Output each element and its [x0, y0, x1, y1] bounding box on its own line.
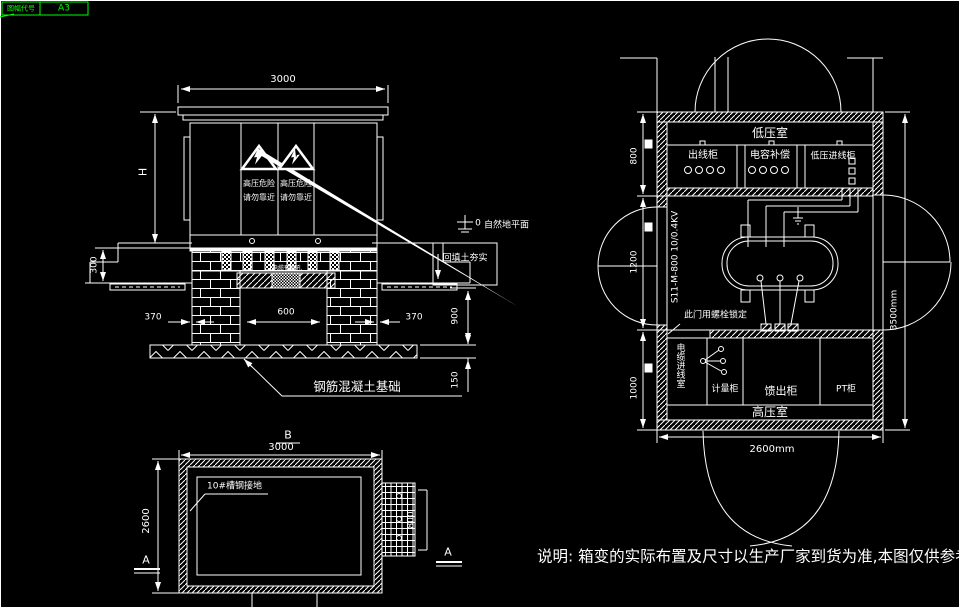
warning-text-line1: 高压危险	[243, 180, 275, 188]
cabinet-lv-incoming-label: 低压进线柜	[810, 153, 855, 162]
plan-dim-3000: 3000	[268, 443, 293, 453]
terminal-strip	[849, 158, 855, 184]
door-bolt-note: 此门用螺栓锁定	[684, 312, 747, 321]
beam-tiny-label: 电缆预留孔	[272, 266, 302, 272]
cabinet-outgoing-label: 出线柜	[688, 151, 718, 161]
plan-dim-800: 800	[408, 511, 417, 528]
layout-dim-3500: 3500mm	[891, 290, 900, 330]
cable-room-label: 电缆进线室	[675, 343, 684, 388]
layout-dim-2600: 2600mm	[750, 445, 795, 455]
hv-room-label: 高压室	[752, 406, 788, 418]
cad-sheet: 图幅代号 A3 3000 H 300 370 370 600 900 150 高…	[0, 0, 960, 608]
layout-dim-1000: 1000	[631, 377, 640, 400]
layout-dim-800: 800	[631, 147, 640, 164]
lintel-beam	[237, 273, 335, 288]
cable-entry-marks	[701, 347, 727, 375]
plan-dim-2600: 2600	[142, 508, 152, 533]
backfill-label: 回填土夯实	[442, 255, 487, 264]
elev-dim-300: 300	[91, 256, 100, 273]
cabinet-capacitor-label: 电容补偿	[750, 151, 790, 161]
foundation-label: 钢筋混凝土基础	[313, 381, 401, 394]
warning-text-line2: 请勿靠近	[280, 194, 312, 202]
cabinet-feeder-label: 馈出柜	[765, 386, 798, 397]
elev-dim-900: 900	[452, 307, 461, 324]
transformer-model-label: S11-M-800 10/0.4KV	[672, 211, 681, 303]
elev-dim-H: H	[138, 168, 149, 176]
bus-wires	[748, 188, 858, 247]
lv-room-label: 低压室	[752, 127, 788, 139]
axis-label-B: B	[284, 430, 292, 441]
high-voltage-warning-icon	[279, 146, 313, 169]
datum-zero: 0	[475, 220, 481, 229]
door-note-leader	[668, 324, 680, 334]
concrete-slab	[150, 345, 417, 358]
elev-dim-600: 600	[277, 309, 294, 318]
warning-text-line2: 请勿靠近	[243, 194, 275, 202]
datum-level-icon	[457, 215, 473, 232]
elev-dim-370-right: 370	[405, 314, 422, 323]
left-pier	[192, 271, 240, 345]
elevation-view	[85, 85, 517, 396]
section-mark-A-right: A	[444, 547, 452, 558]
cabinet-pt-label: PT柜	[836, 386, 856, 395]
ground-level-label: 自然地平面	[484, 222, 529, 231]
elev-dim-370-left: 370	[144, 314, 161, 323]
remark-note: 说明: 箱变的实际布置及尺寸以生产厂家到货为准,本图仅供参考.	[537, 549, 960, 565]
warning-text-line1: 高压危险	[280, 180, 312, 188]
section-mark-A-left: A	[142, 555, 150, 566]
cabinet-metering-label: 计量柜	[711, 386, 738, 395]
sheet-format-code: A3	[58, 4, 70, 13]
elev-dim-3000: 3000	[270, 75, 295, 85]
sheet-format-label: 图幅代号	[7, 5, 35, 12]
elev-dim-150: 150	[452, 371, 461, 388]
layout-dim-1200: 1200	[631, 251, 640, 274]
ground-steel-label: 10#槽钢接地	[207, 483, 262, 492]
cable-trench-block	[382, 483, 427, 556]
